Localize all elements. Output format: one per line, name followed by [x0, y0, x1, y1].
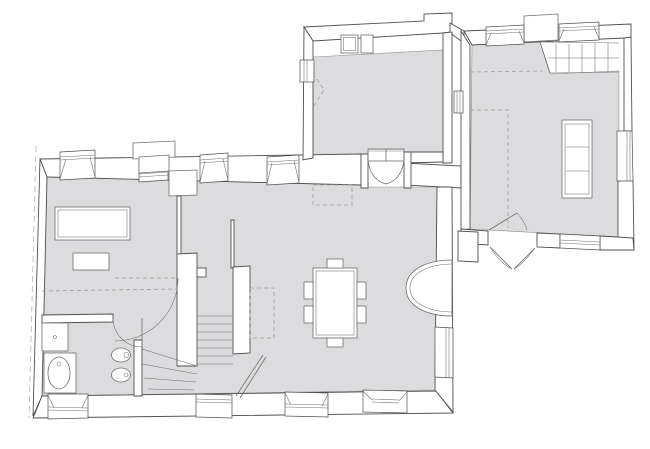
toilet — [112, 348, 131, 362]
dining-chair — [327, 259, 343, 268]
side-table — [73, 253, 109, 270]
kitchen-counter — [341, 35, 373, 53]
living-table — [55, 207, 130, 240]
upper-bottom-wall-c — [600, 236, 634, 250]
door-jamb-left — [361, 154, 368, 188]
upper-left-window — [454, 91, 463, 113]
east-window — [435, 327, 453, 378]
upper-top-window-1 — [486, 25, 524, 46]
bathroom-partition — [134, 340, 142, 396]
floor-plan-drawing — [0, 0, 650, 449]
stair-wall-left — [177, 253, 197, 366]
kitchen-left-wall — [303, 27, 313, 160]
stair-wall-right — [233, 266, 250, 354]
north-window-1 — [60, 150, 95, 180]
dining-chair — [357, 306, 366, 323]
bathtub — [44, 353, 76, 393]
kitchen-left-window — [300, 60, 314, 82]
dining-chair — [304, 282, 313, 299]
upper-top-window-2 — [559, 22, 599, 42]
bathroom-wall — [42, 314, 113, 323]
north-east-wall — [404, 163, 461, 188]
dining-table — [313, 268, 357, 338]
kitchen-floor — [313, 50, 443, 157]
upper-staircase — [540, 42, 619, 73]
upper-chimney-breast — [524, 14, 558, 42]
sofa — [562, 120, 592, 198]
kitchen-top-wall — [304, 13, 452, 41]
upper-right-wall-a — [624, 37, 632, 131]
partition-wall-a — [177, 196, 181, 254]
dining-chair — [304, 306, 313, 323]
upper-living-floor — [470, 42, 619, 237]
fireplace — [169, 170, 197, 196]
upper-bottom-wall-b — [537, 233, 560, 248]
kitchen-right-wall — [443, 32, 452, 163]
door-jamb-right — [404, 152, 411, 188]
upper-left-wall — [461, 31, 470, 230]
bidet — [112, 368, 131, 382]
north-window-3 — [200, 153, 228, 183]
upper-wall-stub — [458, 231, 478, 262]
dining-chair — [357, 282, 366, 299]
south-window-3 — [363, 390, 407, 413]
dining-chair — [327, 338, 343, 347]
stair-wall-notch — [197, 268, 206, 277]
connecting-double-door — [361, 149, 411, 188]
north-window-4 — [267, 155, 299, 185]
south-window-2 — [285, 392, 328, 417]
upper-right-window — [617, 131, 633, 181]
upper-bottom-window — [560, 234, 600, 250]
partition-wall-b — [231, 220, 234, 268]
chimney — [133, 141, 175, 173]
appliance-unit — [361, 35, 373, 53]
floor-plan — [0, 0, 650, 449]
south-window-1 — [48, 394, 88, 419]
washbasin — [42, 323, 68, 351]
